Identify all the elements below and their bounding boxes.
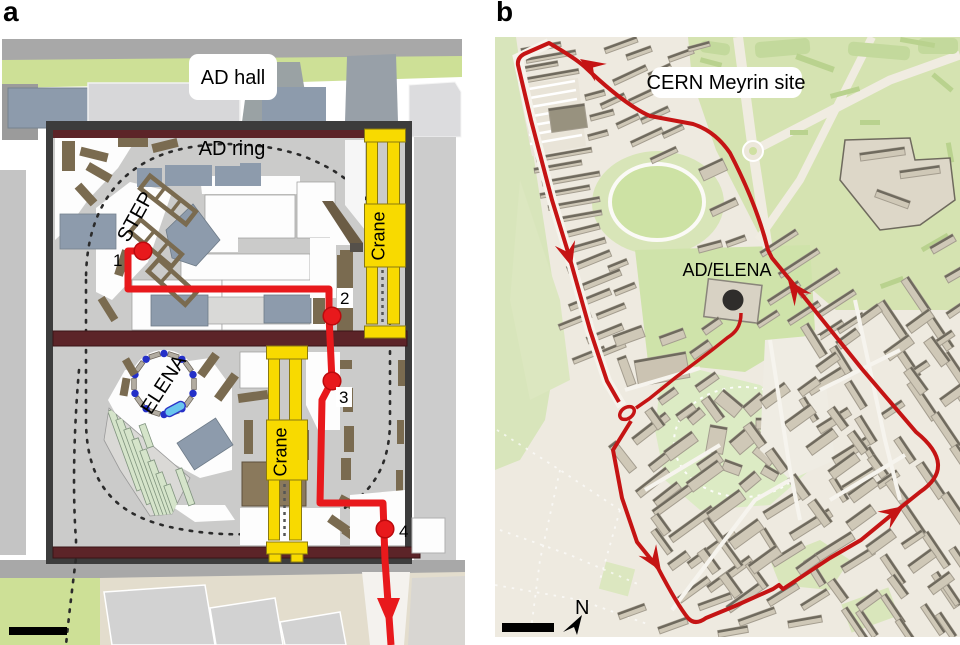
svg-text:2: 2 [340, 289, 349, 308]
svg-text:AD hall: AD hall [201, 67, 265, 89]
svg-text:AD ring: AD ring [199, 138, 266, 160]
svg-text:3: 3 [339, 388, 348, 407]
svg-text:Crane: Crane [271, 427, 291, 476]
svg-text:4: 4 [399, 522, 408, 541]
svg-text:CERN Meyrin site: CERN Meyrin site [647, 72, 806, 94]
svg-text:1: 1 [113, 251, 122, 270]
svg-text:Crane: Crane [369, 211, 389, 260]
svg-text:N: N [575, 597, 589, 619]
svg-text:AD/ELENA: AD/ELENA [682, 260, 771, 280]
